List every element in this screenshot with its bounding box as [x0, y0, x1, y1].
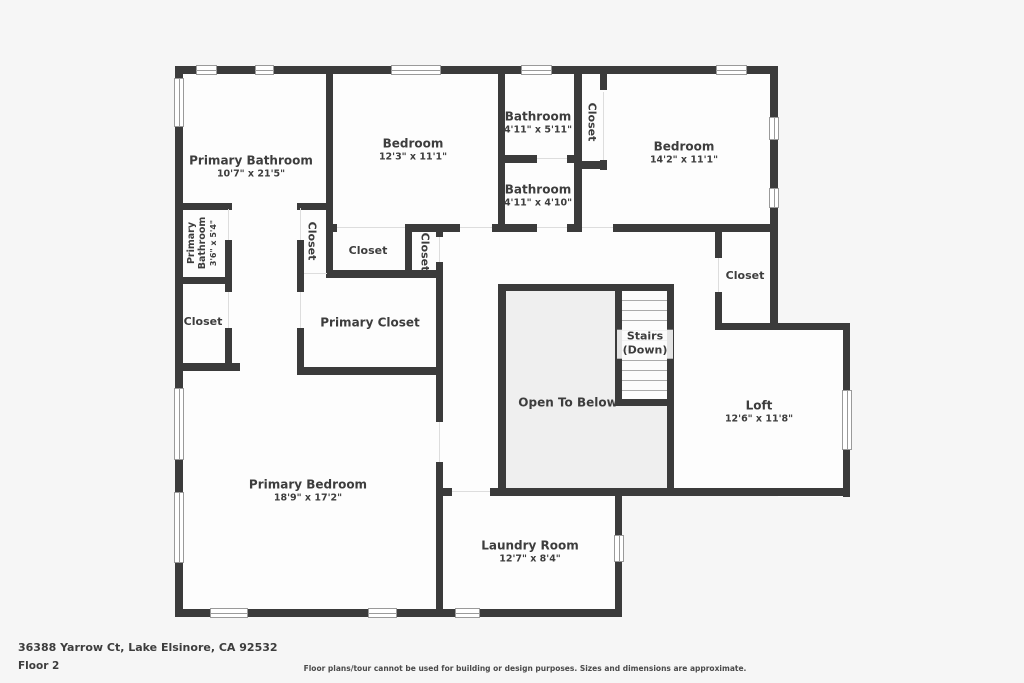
room-label-primary-bathroom: Primary Bathroom 10'7" x 21'5": [189, 154, 313, 181]
wall-segment: [715, 323, 850, 330]
door-threshold: [337, 227, 405, 228]
door-threshold: [228, 209, 229, 240]
wall-segment: [613, 224, 778, 232]
room-label-closet-a: Closet: [306, 222, 319, 261]
room-dims: 18'9" x 17'2": [249, 493, 367, 505]
room-name: Bathroom: [504, 183, 572, 198]
room-name: Primary Bedroom: [249, 478, 367, 493]
stairs-label: Stairs (Down): [617, 330, 673, 359]
window-icon: [769, 117, 779, 140]
room-label-closet-b: Closet: [349, 244, 388, 258]
room-label-closet-c: Closet: [419, 233, 432, 272]
open-to-below-label: Open To Below: [518, 396, 617, 411]
room-name: Primary Bathroom: [186, 216, 209, 270]
door-threshold: [304, 273, 327, 274]
room-dims: 3'6" x 5'4": [209, 216, 219, 270]
window-icon: [769, 188, 779, 208]
wall-segment: [175, 203, 232, 210]
window-icon: [614, 535, 624, 562]
room-label-laundry-room: Laundry Room 12'7" x 8'4": [481, 539, 579, 566]
wall-segment: [326, 224, 337, 232]
wall-segment: [297, 270, 304, 278]
room-label-primary-bedroom: Primary Bedroom 18'9" x 17'2": [249, 478, 367, 505]
wall-segment: [297, 203, 333, 210]
room-label-bathroom-upper: Bathroom 4'11" x 5'11": [504, 110, 572, 137]
wall-segment: [498, 284, 674, 291]
room-label-loft: Loft 12'6" x 11'8": [725, 399, 793, 426]
wall-segment: [567, 224, 582, 232]
door-threshold: [439, 237, 440, 262]
wall-segment: [667, 284, 674, 495]
wall-segment: [492, 224, 537, 232]
wall-segment: [574, 66, 582, 232]
wall-segment: [498, 284, 506, 495]
wall-segment: [297, 367, 443, 375]
room-label-closet-right: Closet: [726, 269, 765, 283]
window-icon: [174, 388, 184, 460]
room-label-closet-left: Closet: [184, 315, 223, 329]
wall-segment: [175, 277, 232, 284]
wall-segment: [715, 232, 722, 258]
footer-address: 36388 Yarrow Ct, Lake Elsinore, CA 92532: [18, 641, 278, 654]
door-threshold: [439, 422, 440, 462]
wall-segment: [297, 240, 304, 292]
window-icon: [455, 608, 480, 618]
door-threshold: [537, 227, 567, 228]
room-fill: [175, 66, 778, 495]
room-name: Bathroom: [504, 110, 572, 125]
door-threshold: [300, 292, 301, 328]
footer-disclaimer: Floor plans/tour cannot be used for buil…: [304, 664, 747, 673]
wall-segment: [581, 161, 607, 169]
door-threshold: [460, 227, 492, 228]
room-label-bathroom-lower: Bathroom 4'11" x 4'10": [504, 183, 572, 210]
wall-segment: [436, 462, 443, 617]
room-label-hall-closet: Closet: [586, 103, 599, 142]
wall-segment: [436, 262, 443, 422]
room-label-primary-closet: Primary Closet: [320, 316, 420, 331]
room-dims: 12'3" x 11'1": [379, 152, 447, 164]
window-icon: [255, 65, 274, 75]
room-name: Bedroom: [650, 140, 718, 155]
footer-floor-label: Floor 2: [18, 660, 59, 672]
door-threshold: [537, 158, 567, 159]
room-name: Loft: [725, 399, 793, 414]
wall-segment: [405, 224, 460, 232]
room-dims: 14'2" x 11'1": [650, 155, 718, 167]
room-dims: 12'7" x 8'4": [481, 554, 579, 566]
wall-segment: [326, 66, 333, 278]
wall-segment: [505, 155, 537, 163]
wall-segment: [600, 66, 607, 90]
room-dims: 12'6" x 11'8": [725, 414, 793, 426]
door-threshold: [300, 208, 301, 240]
room-dims: 10'7" x 21'5": [189, 169, 313, 181]
wall-segment: [715, 292, 722, 330]
room-dims: 4'11" x 5'11": [504, 125, 572, 137]
wall-segment: [615, 399, 674, 406]
window-icon: [368, 608, 397, 618]
door-threshold: [718, 258, 719, 292]
room-name: Bedroom: [379, 137, 447, 152]
wall-segment: [567, 155, 575, 163]
door-threshold: [228, 292, 229, 328]
room-name: Primary Bathroom: [189, 154, 313, 169]
window-icon: [210, 608, 248, 618]
door-threshold: [452, 491, 490, 492]
door-threshold: [603, 92, 604, 160]
room-label-bedroom-top-right: Bedroom 14'2" x 11'1": [650, 140, 718, 167]
room-name: Laundry Room: [481, 539, 579, 554]
window-icon: [521, 65, 552, 75]
door-threshold: [582, 227, 613, 228]
wall-segment: [225, 240, 232, 292]
wall-segment: [175, 363, 240, 371]
window-icon: [391, 65, 441, 75]
window-icon: [174, 78, 184, 127]
room-label-primary-bathroom-wc: Primary Bathroom 3'6" x 5'4": [186, 216, 218, 270]
room-label-bedroom-top-left: Bedroom 12'3" x 11'1": [379, 137, 447, 164]
window-icon: [716, 65, 747, 75]
window-icon: [842, 390, 852, 450]
floor-plan-page: Primary Bathroom 10'7" x 21'5" Bedroom 1…: [0, 0, 1024, 683]
window-icon: [174, 492, 184, 563]
window-icon: [196, 65, 217, 75]
room-dims: 4'11" x 4'10": [504, 198, 572, 210]
